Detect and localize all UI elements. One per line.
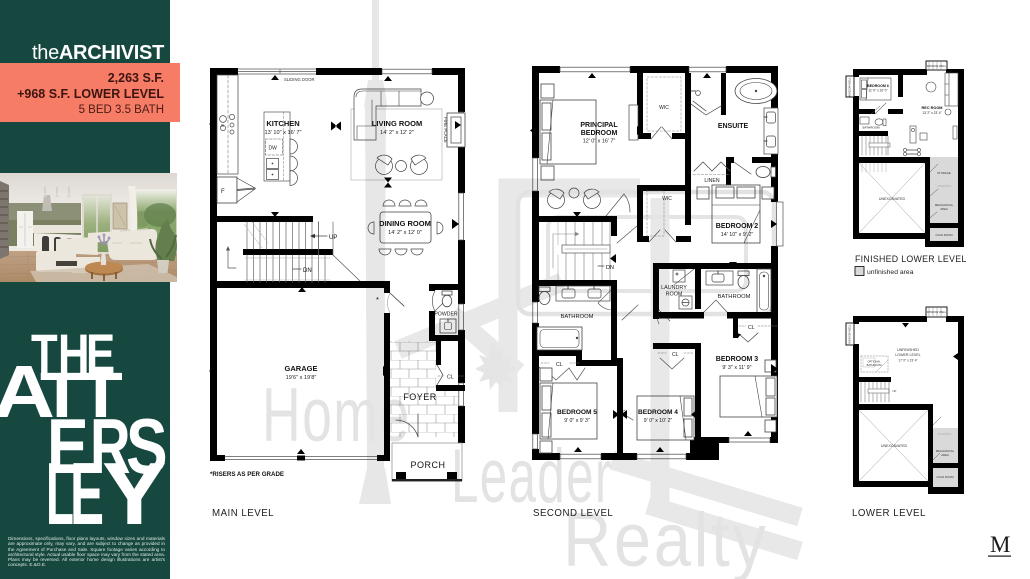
svg-text:LOWER LEVEL: LOWER LEVEL bbox=[852, 508, 926, 519]
svg-text:KITCHEN: KITCHEN bbox=[266, 119, 299, 128]
svg-text:Y: Y bbox=[102, 444, 167, 530]
svg-text:12' 0" x 16' 7": 12' 0" x 16' 7" bbox=[583, 139, 616, 145]
svg-text:REC ROOM: REC ROOM bbox=[922, 106, 943, 110]
svg-text:BATHROOM: BATHROOM bbox=[717, 294, 750, 300]
svg-text:UP: UP bbox=[893, 389, 897, 393]
svg-text:WINDOW WELL: WINDOW WELL bbox=[927, 310, 947, 314]
svg-text:LOWER LEVEL: LOWER LEVEL bbox=[895, 353, 920, 357]
svg-text:9' 3" x 11' 9": 9' 3" x 11' 9" bbox=[722, 365, 751, 371]
svg-text:AREA: AREA bbox=[941, 453, 949, 457]
svg-text:COLD ROOM: COLD ROOM bbox=[936, 475, 954, 479]
svg-text:14' 2" x 12' 0": 14' 2" x 12' 0" bbox=[388, 230, 422, 236]
svg-text:PRINCIPAL: PRINCIPAL bbox=[580, 122, 618, 129]
svg-text:DN: DN bbox=[303, 268, 312, 274]
svg-text:PORCH: PORCH bbox=[410, 460, 445, 470]
svg-text:DW: DW bbox=[269, 146, 278, 152]
svg-text:DN: DN bbox=[606, 265, 614, 271]
svg-text:WIC: WIC bbox=[659, 105, 669, 111]
svg-text:M: M bbox=[990, 532, 1010, 557]
svg-text:FIRE PLACE: FIRE PLACE bbox=[443, 117, 448, 143]
svg-text:BATHROOM: BATHROOM bbox=[867, 363, 882, 367]
svg-text:MAIN LEVEL: MAIN LEVEL bbox=[212, 508, 274, 519]
svg-text:SLIDING DOOR: SLIDING DOOR bbox=[284, 77, 314, 82]
svg-text:ENSUITE: ENSUITE bbox=[718, 123, 749, 130]
svg-text:LINEN: LINEN bbox=[704, 178, 720, 184]
svg-text:BEDROOM: BEDROOM bbox=[581, 130, 618, 137]
svg-text:11' 0" x 10' 0": 11' 0" x 10' 0" bbox=[868, 89, 887, 93]
svg-text:FINISHED LOWER LEVEL: FINISHED LOWER LEVEL bbox=[855, 254, 967, 264]
svg-text:E: E bbox=[70, 446, 104, 530]
svg-text:OPTIONAL: OPTIONAL bbox=[867, 360, 881, 364]
svg-text:14' 10" x 9' 2": 14' 10" x 9' 2" bbox=[721, 232, 754, 238]
svg-text:AREA: AREA bbox=[940, 207, 948, 211]
svg-text:BEDROOM 3: BEDROOM 3 bbox=[716, 356, 759, 363]
svg-text:CL: CL bbox=[556, 362, 563, 368]
svg-text:DINING ROOM: DINING ROOM bbox=[379, 219, 431, 228]
svg-text:SECOND LEVEL: SECOND LEVEL bbox=[533, 508, 613, 519]
svg-text:Home: Home bbox=[262, 372, 411, 458]
svg-text:CL: CL bbox=[748, 325, 755, 331]
svg-text:WINDOW WELL: WINDOW WELL bbox=[848, 77, 852, 97]
svg-text:WINDOW WELL: WINDOW WELL bbox=[848, 324, 852, 344]
svg-text:BATHROOM: BATHROOM bbox=[862, 126, 880, 130]
svg-text:*RISERS AS PER GRADE: *RISERS AS PER GRADE bbox=[210, 471, 284, 478]
svg-text:UNFINISHED: UNFINISHED bbox=[897, 348, 919, 352]
svg-text:9' 0" x 9' 3": 9' 0" x 9' 3" bbox=[564, 418, 590, 424]
svg-text:UP: UP bbox=[329, 235, 337, 241]
svg-text:S: S bbox=[221, 123, 224, 128]
svg-text:CL: CL bbox=[447, 375, 454, 381]
svg-text:BEDROOM 6: BEDROOM 6 bbox=[867, 84, 889, 88]
svg-text:WINDOW WELL: WINDOW WELL bbox=[927, 64, 947, 68]
svg-text:F: F bbox=[221, 189, 225, 195]
svg-text:UNEXCAVATED: UNEXCAVATED bbox=[881, 444, 908, 448]
svg-text:CL: CL bbox=[672, 352, 679, 358]
svg-text:BEDROOM 2: BEDROOM 2 bbox=[716, 223, 759, 230]
svg-text:13' 2" x 23' 4": 13' 2" x 23' 4" bbox=[922, 111, 941, 115]
svg-text:UNEXCAVATED: UNEXCAVATED bbox=[879, 197, 906, 201]
svg-text:unfinished area: unfinished area bbox=[867, 269, 914, 276]
svg-text:STORAGE: STORAGE bbox=[937, 171, 951, 175]
svg-text:13' 10" x 16' 7": 13' 10" x 16' 7" bbox=[265, 130, 302, 136]
svg-text:COLD ROOM: COLD ROOM bbox=[935, 233, 953, 237]
svg-text:BEDROOM 5: BEDROOM 5 bbox=[557, 409, 597, 416]
svg-text:17' 0" x 23' 4": 17' 0" x 23' 4" bbox=[898, 359, 917, 363]
